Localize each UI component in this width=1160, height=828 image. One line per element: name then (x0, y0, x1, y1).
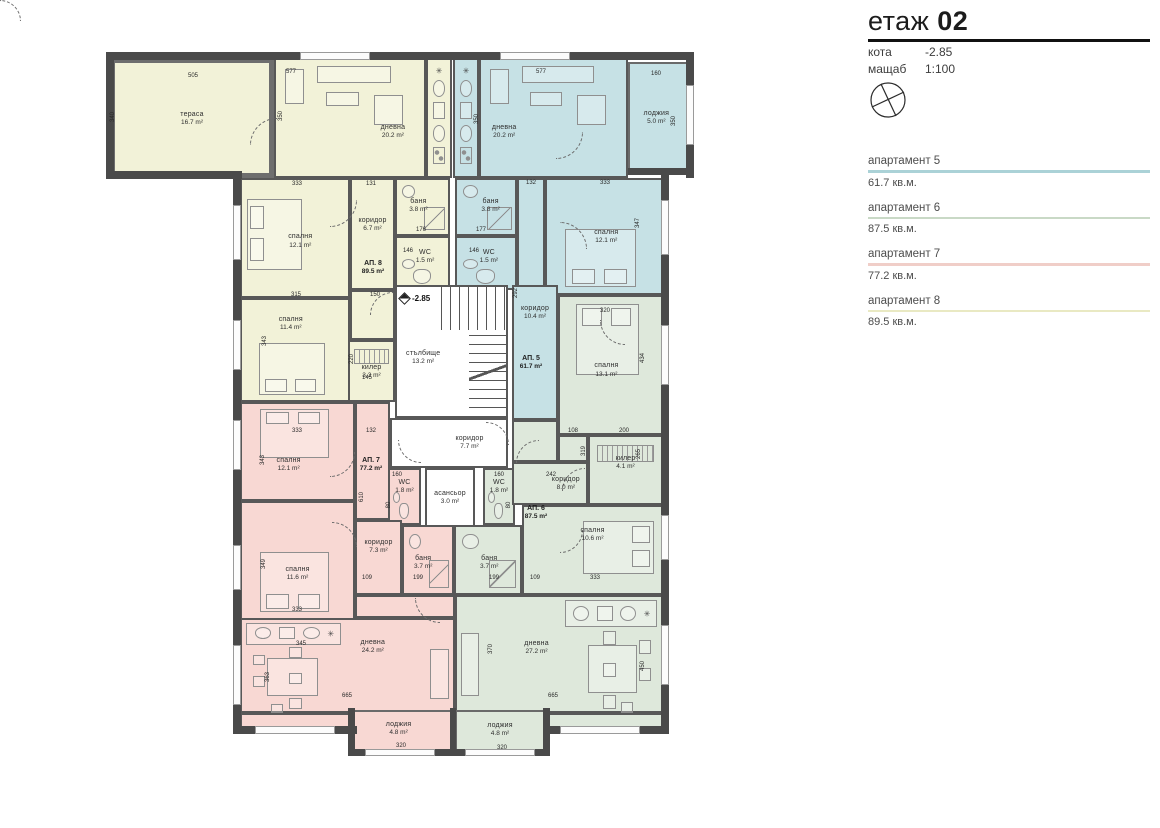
room-area: 10.4 m² (521, 314, 549, 322)
legend-item: апартамент 5 61.7 кв.м. (868, 155, 1150, 189)
room-area: 13.1 m² (594, 371, 618, 379)
room-label: дневна 24.2 m² (361, 639, 386, 657)
window (365, 749, 435, 756)
dimension-label: 242 (546, 472, 556, 478)
room-name: лоджия (487, 721, 513, 730)
pillow (572, 269, 595, 284)
room-name: коридор (364, 538, 392, 547)
room-label: спалня 12.1 m² (594, 228, 618, 246)
oven (433, 102, 446, 119)
dimension-label: 220 (349, 354, 355, 364)
room-kitchen8: ✳ (426, 58, 452, 178)
kitchen-sink (303, 627, 320, 639)
room-label: WC 1.5 m² (480, 248, 498, 266)
window (560, 726, 640, 734)
window (661, 515, 669, 560)
legend-apartment-area: 61.7 кв.м. (868, 173, 1150, 189)
chair (289, 647, 302, 658)
legend-apartment-name: апартамент 6 (868, 202, 1150, 217)
oven (597, 606, 613, 621)
room-area: 4.8 m² (386, 729, 412, 737)
legend-apartment-name: апартамент 8 (868, 295, 1150, 310)
room-label: лоджия 4.8 m² (487, 721, 513, 739)
armchair (490, 69, 509, 104)
window (233, 205, 241, 260)
room-spalnya6a: спалня 13.1 m² (558, 295, 663, 435)
legend-apartment-name: апартамент 7 (868, 248, 1150, 263)
legend-item: апартамент 7 77.2 кв.м. (868, 248, 1150, 282)
toilet (494, 503, 504, 519)
room-name: спалня (288, 233, 312, 242)
dimension-label: 146 (469, 248, 479, 254)
dimension-label: 343 (260, 455, 266, 465)
legend-item: апартамент 8 89.5 кв.м. (868, 295, 1150, 329)
dimension-label: 109 (362, 575, 372, 581)
dimension-label: 333 (292, 181, 302, 187)
room-area: 3.8 m² (481, 206, 499, 214)
room-name: коридор (358, 217, 386, 226)
level-value: -2.85 (412, 294, 430, 303)
dimension-label: 319 (581, 446, 587, 456)
room-area: 8.0 m² (552, 484, 580, 492)
room-name: спалня (580, 526, 604, 535)
window (233, 320, 241, 370)
room-area: 1.5 m² (480, 257, 498, 265)
room-area: 20.2 m² (381, 132, 406, 140)
chair (603, 695, 615, 709)
kitchen-sink (460, 125, 473, 142)
sink (462, 534, 479, 550)
room-name: дневна (361, 639, 386, 648)
desk (374, 95, 404, 125)
apartment-number: АП. 6 (525, 504, 547, 513)
kitchen-star-icon: ✳ (327, 629, 334, 638)
dimension-label: 363 (265, 672, 271, 682)
room-name: баня (414, 555, 432, 564)
room-name: коридор (455, 434, 483, 443)
kitchen-counter: ✳ (565, 600, 657, 627)
room-label: баня 3.8 m² (481, 197, 499, 215)
apartment-label: АП. 7 77.2 m² (360, 456, 382, 474)
pillow (632, 526, 650, 543)
sink (409, 534, 421, 550)
room-area: 11.4 m² (279, 324, 303, 332)
room-kiler8: килер 3.3 m² (348, 340, 395, 402)
room-area: 12.1 m² (594, 237, 618, 245)
room-label: лоджия 4.8 m² (386, 720, 412, 738)
dimension-label: 320 (497, 745, 507, 751)
level-mark-icon (398, 292, 411, 305)
window (686, 85, 694, 145)
room-area: 24.2 m² (361, 648, 386, 656)
kitchen-sink (460, 80, 473, 97)
apartment-area: 87.5 m² (525, 513, 547, 522)
room-area: 3.0 m² (434, 498, 466, 506)
apartment-label: АП. 8 89.5 m² (362, 259, 384, 277)
dimension-label: 108 (568, 428, 578, 434)
room-label: спалня 12.1 m² (288, 233, 312, 251)
dimension-label: 315 (291, 292, 301, 298)
kota-row: кота -2.85 (868, 45, 1150, 59)
level-marker: -2.85 (400, 294, 430, 303)
north-compass-icon (869, 80, 909, 120)
room-area: 12.1 m² (288, 242, 312, 250)
apartment-area: 61.7 m² (520, 363, 542, 372)
window (233, 420, 241, 470)
floor-number: 02 (937, 6, 968, 36)
dimension-label: 665 (548, 693, 558, 699)
apartment-label: АП. 6 87.5 m² (525, 504, 547, 522)
chair (253, 676, 266, 687)
room-name: тераса (180, 110, 203, 119)
dimension-label: 160 (651, 71, 661, 77)
pillow (298, 412, 320, 424)
kitchen-counter: ✳ (457, 62, 475, 174)
room-name: спалня (594, 228, 618, 237)
sink (463, 259, 478, 269)
kitchen-sink (433, 125, 446, 142)
room-name: спалня (277, 456, 301, 465)
legend-apartment-area: 89.5 кв.м. (868, 312, 1150, 328)
room-name: лоджия (386, 720, 412, 729)
room-name: WC (416, 248, 434, 257)
dimension-label: 345 (296, 641, 306, 647)
room-name: спалня (279, 315, 303, 324)
dimension-label: 320 (600, 308, 610, 314)
scale-value: 1:100 (925, 62, 955, 76)
dimension-label: 80 (506, 502, 512, 509)
kitchen-sink (620, 606, 636, 621)
dimension-label: 350 (278, 111, 284, 121)
dimension-label: 200 (619, 428, 629, 434)
pillow (632, 550, 650, 567)
room-loggia5: лоджия 5.0 m² (628, 62, 688, 174)
window (233, 545, 241, 590)
room-banya7: баня 3.7 m² (402, 525, 454, 595)
pillow (266, 594, 288, 609)
kota-value: -2.85 (925, 45, 952, 59)
kitchen-star-icon: ✳ (436, 66, 443, 75)
toilet (476, 269, 496, 284)
room-label: стълбище 13.2 m² (406, 349, 440, 367)
room-name: спалня (285, 566, 309, 575)
room-spalnya8a: спалня 12.1 m² (240, 178, 350, 298)
kitchen-star-icon: ✳ (463, 66, 470, 75)
shelves (354, 349, 388, 364)
kota-label: кота (868, 45, 925, 59)
room-label: баня 3.7 m² (414, 555, 432, 573)
stove-burners (460, 147, 473, 164)
sink (402, 259, 415, 269)
room-label: килер 4.1 m² (616, 455, 636, 473)
sofa (430, 649, 449, 699)
apartment-area: 89.5 m² (362, 268, 384, 277)
room-koridor7: коридор 7.3 m² (355, 520, 402, 595)
dimension-label: 145 (362, 375, 372, 381)
room-name: WC (395, 478, 413, 487)
dimension-label: 343 (262, 336, 268, 346)
desk (577, 95, 606, 125)
window (233, 645, 241, 705)
dimension-label: 150 (370, 292, 380, 298)
dimension-label: 265 (636, 449, 642, 459)
chair (253, 655, 266, 666)
room-area: 11.6 m² (285, 575, 309, 583)
room-label: дневна 20.2 m² (381, 123, 406, 141)
pillow (266, 412, 288, 424)
room-label: дневна 20.2 m² (492, 123, 517, 141)
dimension-label: 340 (110, 112, 116, 122)
room-label: WC 1.5 m² (416, 248, 434, 266)
room-spalnya7b: спалня 11.6 m² (240, 501, 355, 620)
room-dnevna6: ✳дневна 27.2 m² (455, 595, 663, 713)
sofa (522, 66, 595, 83)
legend-item: апартамент 6 87.5 кв.м. (868, 202, 1150, 236)
window (661, 200, 669, 255)
room-koridor5: коридор 10.4 m² (512, 285, 558, 420)
room-name: килер (616, 455, 636, 464)
title-block: етаж 02 кота -2.85 мащаб 1:100 (868, 6, 1150, 76)
room-label: WC 1.8 m² (490, 478, 508, 496)
dimension-label: 132 (526, 180, 536, 186)
dimension-label: 146 (403, 248, 413, 254)
dimension-label: 176 (416, 227, 426, 233)
kitchen-sink (433, 80, 446, 97)
room-area: 5.0 m² (644, 118, 670, 126)
dimension-label: 333 (292, 428, 302, 434)
room-spalnya8b: спалня 11.4 m² (240, 298, 350, 402)
room-label: спалня 13.1 m² (594, 362, 618, 380)
pillow (265, 379, 286, 392)
floorplan-sheet: { "title_block": { "floor_word": "етаж",… (0, 0, 1160, 828)
room-label: коридор 6.7 m² (358, 217, 386, 235)
room-label: дневна 27.2 m² (524, 640, 549, 658)
room-label: спалня 11.6 m² (285, 566, 309, 584)
dimension-label: 320 (396, 743, 406, 749)
exterior-wall-terrace-bottom (106, 171, 242, 179)
dimension-label: 610 (359, 492, 365, 502)
room-name: баня (481, 197, 499, 206)
sink (463, 185, 478, 198)
kitchen-sink (255, 627, 272, 639)
apartment-area: 77.2 m² (360, 465, 382, 474)
apartment-number: АП. 8 (362, 259, 384, 268)
pillow (250, 206, 264, 229)
room-name: килер (362, 363, 382, 372)
stair-treads (433, 287, 506, 330)
sofa (317, 66, 391, 83)
chair (639, 640, 651, 654)
dimension-label: 434 (640, 353, 646, 363)
apartment-number: АП. 7 (360, 456, 382, 465)
room-name: коридор (521, 304, 549, 313)
room-area: 1.8 m² (395, 487, 413, 495)
room-label: спалня 10.6 m² (580, 526, 604, 544)
dimension-label: 80 (386, 502, 392, 509)
dimension-label: 292 (513, 288, 519, 298)
dimension-label: 109 (530, 575, 540, 581)
dimension-label: 333 (590, 575, 600, 581)
dimension-label: 131 (366, 181, 376, 187)
window (661, 325, 669, 385)
room-name: дневна (524, 640, 549, 649)
dimension-label: 333 (600, 180, 610, 186)
room-area: 7.7 m² (455, 443, 483, 451)
pillow (604, 269, 627, 284)
room-name: лоджия (644, 109, 670, 118)
room-wc5: WC 1.5 m² (455, 236, 517, 290)
dimension-label: 505 (188, 73, 198, 79)
dimension-label: 350 (474, 114, 480, 124)
room-label: спалня 12.1 m² (277, 456, 301, 474)
kitchen-star-icon: ✳ (644, 609, 651, 618)
window (300, 52, 370, 60)
room-dnevna5: дневна 20.2 m² (479, 58, 628, 178)
stair-treads (469, 330, 506, 416)
room-label: асансьор 3.0 m² (434, 489, 466, 507)
legend-apartment-area: 77.2 кв.м. (868, 266, 1150, 282)
dimension-label: 349 (261, 559, 267, 569)
dimension-label: 350 (671, 116, 677, 126)
room-area: 13.2 m² (406, 358, 440, 366)
dimension-label: 450 (640, 661, 646, 671)
floor-plan: -2.85 тераса 16.7 m²дневна 20.2 m²✳✳днев… (0, 0, 1160, 828)
room-area: 1.8 m² (490, 487, 508, 495)
dimension-label: 177 (476, 227, 486, 233)
room-label: коридор 7.3 m² (364, 538, 392, 556)
room-label: баня 3.8 m² (409, 197, 427, 215)
room-label: WC 1.8 m² (395, 478, 413, 496)
room-area: 6.7 m² (358, 226, 386, 234)
sofa (461, 633, 479, 696)
chair (603, 663, 615, 677)
chair (289, 673, 302, 684)
room-area: 3.8 m² (409, 206, 427, 214)
dimension-label: 199 (413, 575, 423, 581)
room-kiler6: килер 4.1 m² (588, 435, 663, 505)
room-label: баня 3.7 m² (480, 555, 498, 573)
dimension-label: 370 (488, 644, 494, 654)
stove-burners (433, 147, 446, 164)
scale-row: мащаб 1:100 (868, 62, 1150, 76)
room-stairs: стълбище 13.2 m² (395, 285, 508, 418)
room-area: 7.3 m² (364, 547, 392, 555)
kitchen-counter: ✳ (246, 623, 341, 645)
apartment-legend: апартамент 5 61.7 кв.м.апартамент 6 87.5… (868, 155, 1150, 341)
oven (279, 627, 296, 639)
room-dnevna8: дневна 20.2 m² (274, 58, 426, 178)
room-name: баня (480, 555, 498, 564)
room-name: стълбище (406, 349, 440, 358)
room-banya6: баня 3.7 m² (454, 525, 522, 595)
dimension-label: 577 (536, 69, 546, 75)
window (500, 52, 570, 60)
pillow (295, 379, 316, 392)
room-area: 12.1 m² (277, 465, 301, 473)
coffee-table (326, 92, 359, 106)
room-area: 10.6 m² (580, 535, 604, 543)
scale-label: мащаб (868, 62, 925, 76)
room-label: тераса 16.7 m² (180, 110, 203, 128)
kitchen-counter: ✳ (430, 62, 448, 174)
title-rule (868, 39, 1150, 42)
room-label: лоджия 5.0 m² (644, 109, 670, 127)
room-name: асансьор (434, 489, 466, 498)
dimension-label: 665 (342, 693, 352, 699)
dimension-label: 347 (635, 218, 641, 228)
kitchen-sink (573, 606, 589, 621)
room-label: коридор 7.7 m² (455, 434, 483, 452)
room-area: 3.7 m² (480, 564, 498, 572)
dimension-label: 333 (292, 607, 302, 613)
room-name: баня (409, 197, 427, 206)
dimension-label: 160 (392, 472, 402, 478)
apartment-label: АП. 5 61.7 m² (520, 354, 542, 372)
pillow (250, 238, 264, 261)
chair (603, 631, 615, 645)
exterior-wall-top (106, 52, 694, 60)
room-label: спалня 11.4 m² (279, 315, 303, 333)
toilet (413, 269, 430, 284)
room-area: 27.2 m² (524, 649, 549, 657)
sheet-title: етаж 02 (868, 6, 1150, 37)
room-f7b (355, 595, 455, 618)
window (661, 625, 669, 685)
room-area: 4.8 m² (487, 730, 513, 738)
door-arc (0, 0, 21, 21)
floor-word: етаж (868, 6, 929, 36)
dimension-label: 199 (489, 575, 499, 581)
room-name: дневна (492, 123, 517, 132)
coffee-table (530, 92, 562, 106)
room-area: 1.5 m² (416, 257, 434, 265)
room-area: 20.2 m² (492, 132, 517, 140)
legend-apartment-area: 87.5 кв.м. (868, 219, 1150, 235)
room-name: WC (480, 248, 498, 257)
loggia5-wall-bottom (628, 168, 694, 175)
room-area: 3.7 m² (414, 564, 432, 572)
room-area: 16.7 m² (180, 119, 203, 127)
room-area: 4.1 m² (616, 464, 636, 472)
toilet (399, 503, 409, 519)
dimension-label: 160 (494, 472, 504, 478)
room-name: дневна (381, 123, 406, 132)
room-label: коридор 10.4 m² (521, 304, 549, 322)
oven (460, 102, 473, 119)
legend-apartment-name: апартамент 5 (868, 155, 1150, 170)
room-lift: асансьор 3.0 m² (425, 468, 475, 528)
chair (289, 698, 302, 709)
room-name: WC (490, 478, 508, 487)
room-wc8: WC 1.5 m² (395, 236, 450, 290)
room-hall5 (517, 178, 545, 290)
apartment-number: АП. 5 (520, 354, 542, 363)
dimension-label: 132 (366, 428, 376, 434)
window (255, 726, 335, 734)
dimension-label: 577 (286, 69, 296, 75)
room-name: спалня (594, 362, 618, 371)
